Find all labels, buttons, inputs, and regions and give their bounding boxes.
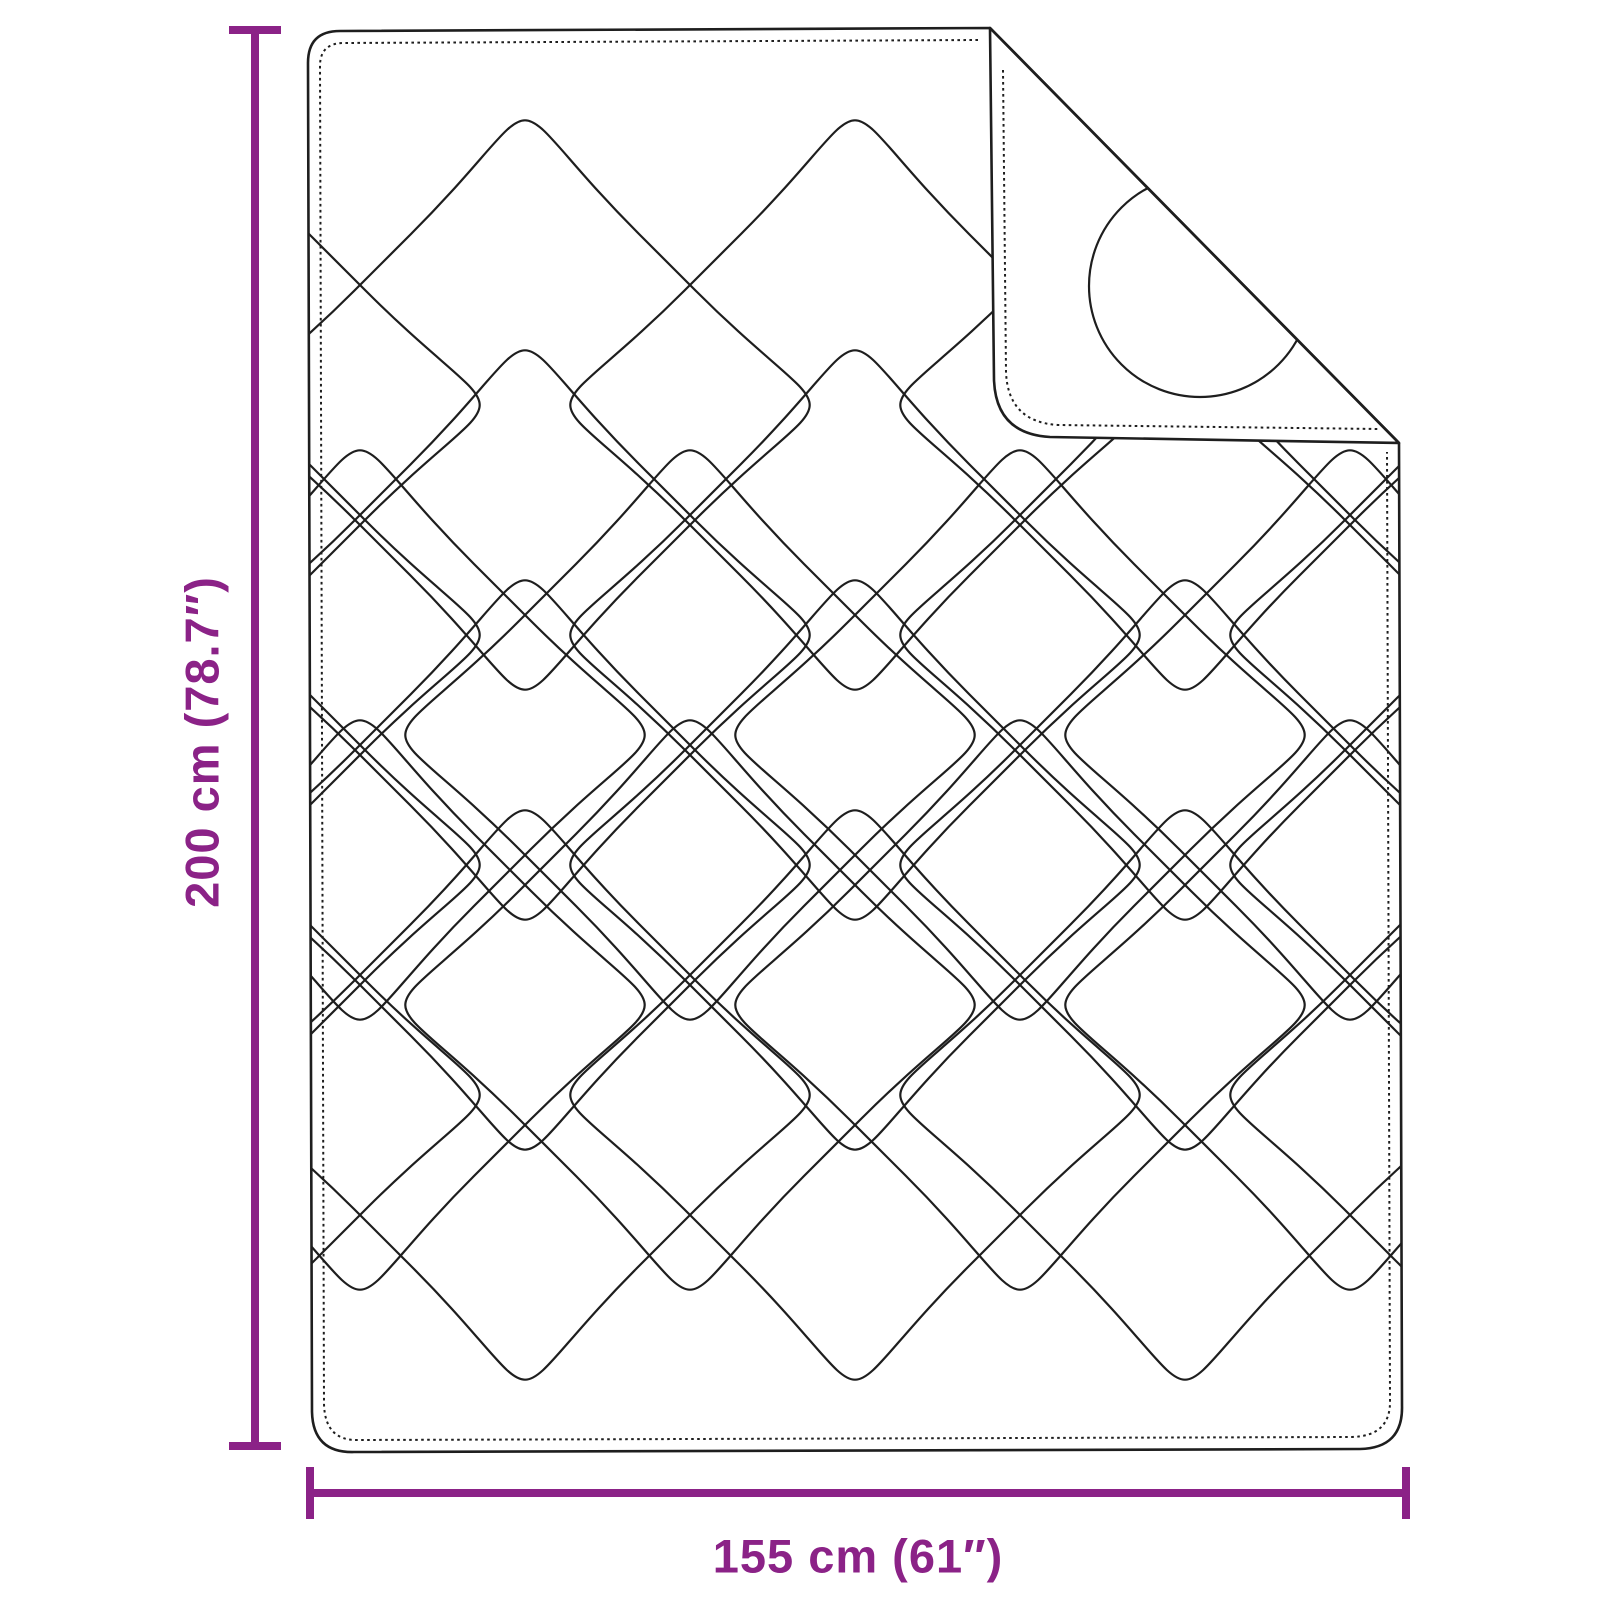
dimension-diagram-page: 200 cm (78.7″) 155 cm (61″) (0, 0, 1600, 1600)
width-dimension-cap-right (1402, 1467, 1410, 1519)
width-label: 155 cm (61″) (713, 1530, 1004, 1583)
height-dimension-line (251, 30, 259, 1448)
width-dimension-line (308, 1489, 1408, 1497)
height-label: 200 cm (78.7″) (176, 576, 229, 908)
folded-corner (990, 28, 1399, 443)
blanket-outline (308, 28, 1402, 1452)
height-dimension-cap-bottom (229, 1442, 281, 1450)
blanket-dimension-diagram: 200 cm (78.7″) 155 cm (61″) (0, 0, 1600, 1600)
width-dimension: 155 cm (61″) (306, 1467, 1410, 1583)
height-dimension-cap-top (229, 26, 281, 34)
width-dimension-cap-left (306, 1467, 314, 1519)
height-dimension: 200 cm (78.7″) (176, 26, 282, 1450)
